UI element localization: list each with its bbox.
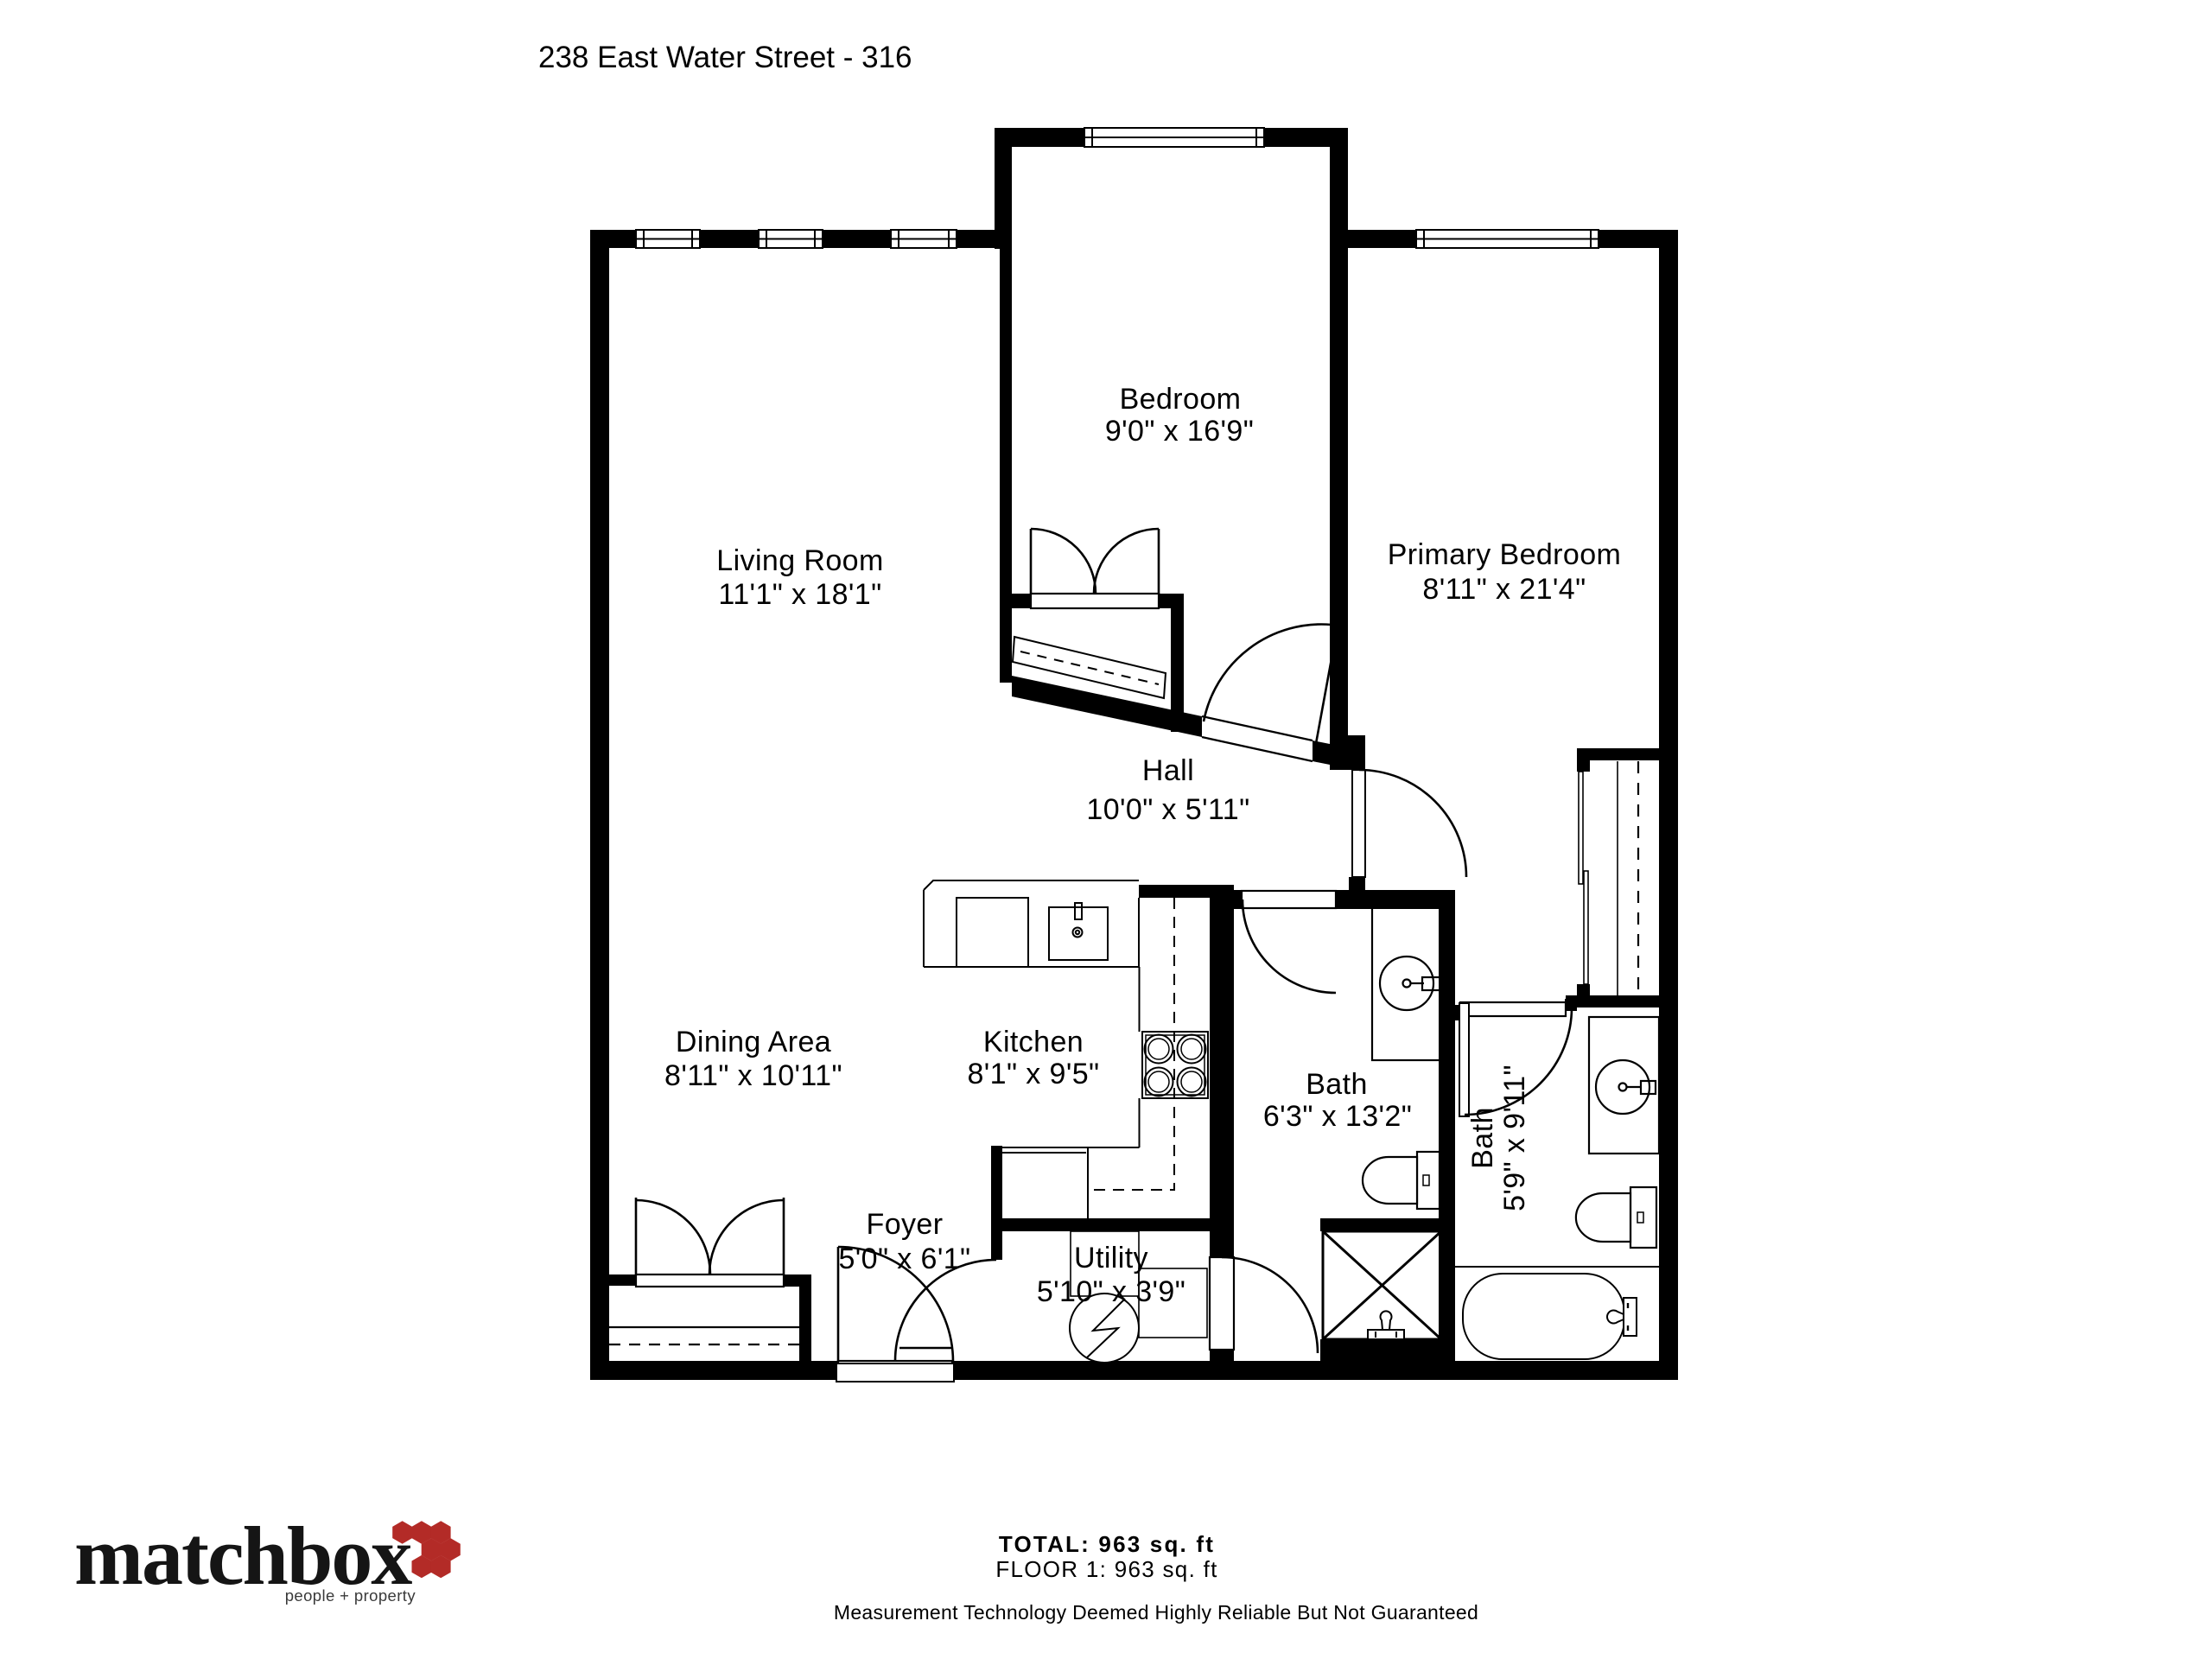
svg-text:TOTAL: 963 sq. ft: TOTAL: 963 sq. ft — [999, 1531, 1215, 1557]
svg-text:5'0" x 6'1": 5'0" x 6'1" — [838, 1243, 970, 1275]
svg-text:9'0" x 16'9": 9'0" x 16'9" — [1105, 415, 1254, 448]
svg-text:Hall: Hall — [1142, 754, 1194, 787]
svg-text:8'11" x 10'11": 8'11" x 10'11" — [664, 1059, 842, 1092]
svg-text:11'1" x 18'1": 11'1" x 18'1" — [718, 578, 881, 611]
svg-text:Dining Area: Dining Area — [676, 1026, 831, 1058]
svg-text:FLOOR 1: 963 sq. ft: FLOOR 1: 963 sq. ft — [995, 1556, 1217, 1582]
svg-text:Foyer: Foyer — [867, 1208, 944, 1241]
svg-text:Bedroom: Bedroom — [1120, 383, 1242, 416]
svg-text:8'11" x 21'4": 8'11" x 21'4" — [1422, 573, 1586, 606]
svg-text:Bath: Bath — [1306, 1068, 1368, 1101]
svg-text:Living Room: Living Room — [716, 544, 883, 577]
svg-text:10'0" x 5'11": 10'0" x 5'11" — [1086, 793, 1249, 826]
svg-text:people + property: people + property — [285, 1586, 416, 1605]
svg-text:Primary Bedroom: Primary Bedroom — [1388, 538, 1622, 571]
svg-text:6'3" x 13'2": 6'3" x 13'2" — [1263, 1100, 1412, 1133]
svg-text:5'10" x 3'9": 5'10" x 3'9" — [1037, 1275, 1185, 1308]
svg-text:5'9" x 9'11": 5'9" x 9'11" — [1498, 1065, 1531, 1211]
svg-text:Bath: Bath — [1466, 1107, 1499, 1169]
svg-text:Kitchen: Kitchen — [983, 1026, 1084, 1058]
svg-text:Measurement Technology Deemed: Measurement Technology Deemed Highly Rel… — [834, 1601, 1478, 1624]
svg-text:8'1" x 9'5": 8'1" x 9'5" — [967, 1058, 1099, 1090]
svg-text:238 East Water Street - 316: 238 East Water Street - 316 — [538, 41, 912, 74]
svg-text:Utility: Utility — [1074, 1242, 1148, 1274]
